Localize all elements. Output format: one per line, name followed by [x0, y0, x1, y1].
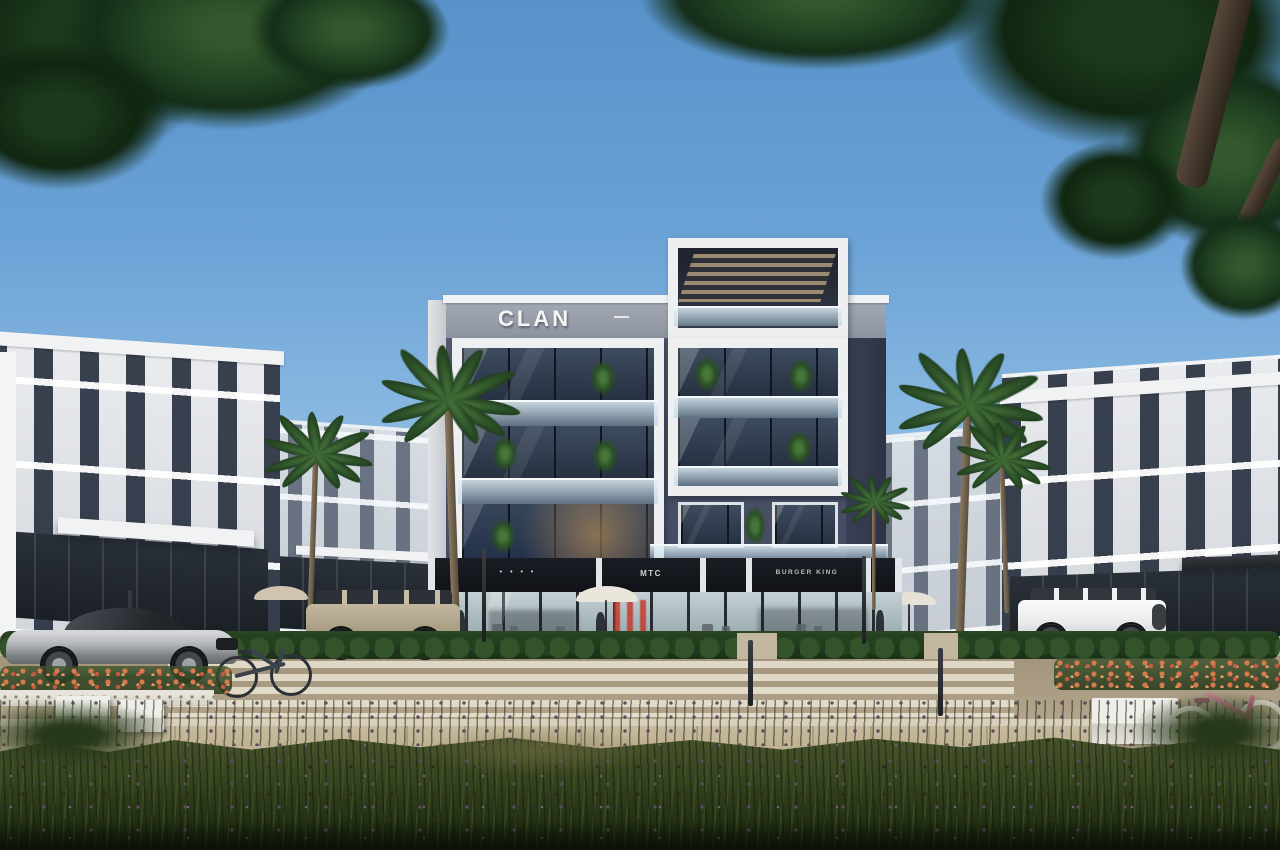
storefront-column — [428, 558, 435, 592]
floor2-balcony-rail — [458, 478, 658, 504]
right-wing-floor-2 — [678, 348, 838, 418]
bollard-crosswalk — [748, 640, 753, 706]
storefront-column — [895, 558, 902, 592]
foreground-dark-edge — [0, 820, 1280, 850]
architectural-render-scene: CLAN — [0, 0, 1280, 850]
floor1-plant — [490, 518, 516, 554]
bicycle-dark — [216, 628, 316, 702]
bike-seat — [238, 650, 252, 654]
light-pole-center-right — [862, 556, 866, 644]
shop-sign-mtc: MTC — [608, 569, 694, 578]
storefront-column — [866, 558, 871, 592]
lower-window-left — [678, 502, 744, 548]
left-complex-white-fin — [0, 352, 16, 638]
pergola-louvers — [678, 254, 836, 302]
rw-floor1-plant — [786, 430, 812, 466]
roof-terrace-rail — [674, 306, 842, 326]
light-pole-center-left — [482, 548, 486, 642]
dry-grass-patch — [420, 726, 660, 776]
storefront-column — [746, 558, 752, 592]
clan-sign-text: CLAN — [498, 306, 571, 331]
floor2-plant-a — [492, 436, 518, 472]
palm-trunk — [872, 500, 876, 610]
rw-floor1-glazing — [678, 418, 838, 468]
floor2-plant-b — [592, 438, 618, 474]
right-wing-frame — [668, 338, 848, 496]
shop-sign-burger-king: BURGER KING — [754, 569, 860, 576]
terrace-plant — [744, 506, 766, 546]
rw-floor1-rail — [674, 466, 842, 486]
hedge-gap-crosswalk — [737, 633, 777, 659]
left-wing-floor-2 — [462, 426, 654, 504]
rw-floor2-rail — [674, 396, 842, 418]
right-wing-floor-1 — [678, 418, 838, 486]
floor2-glazing — [462, 426, 654, 480]
bike-wheel — [270, 654, 312, 696]
gwagon-spare-wheel — [1152, 604, 1166, 630]
roof-pergola-box — [668, 238, 848, 338]
storefront-column — [700, 558, 706, 592]
clan-sign: CLAN — [498, 306, 648, 334]
shop-sign-dots: • • • • — [458, 569, 578, 576]
floor3-plant — [590, 360, 616, 396]
rw-floor2-plant-a — [694, 356, 720, 392]
rw-floor2-plant-b — [788, 358, 814, 394]
lower-window-right — [772, 502, 838, 548]
storefront-sign-band: • • • • MTC BURGER KING — [428, 558, 902, 592]
